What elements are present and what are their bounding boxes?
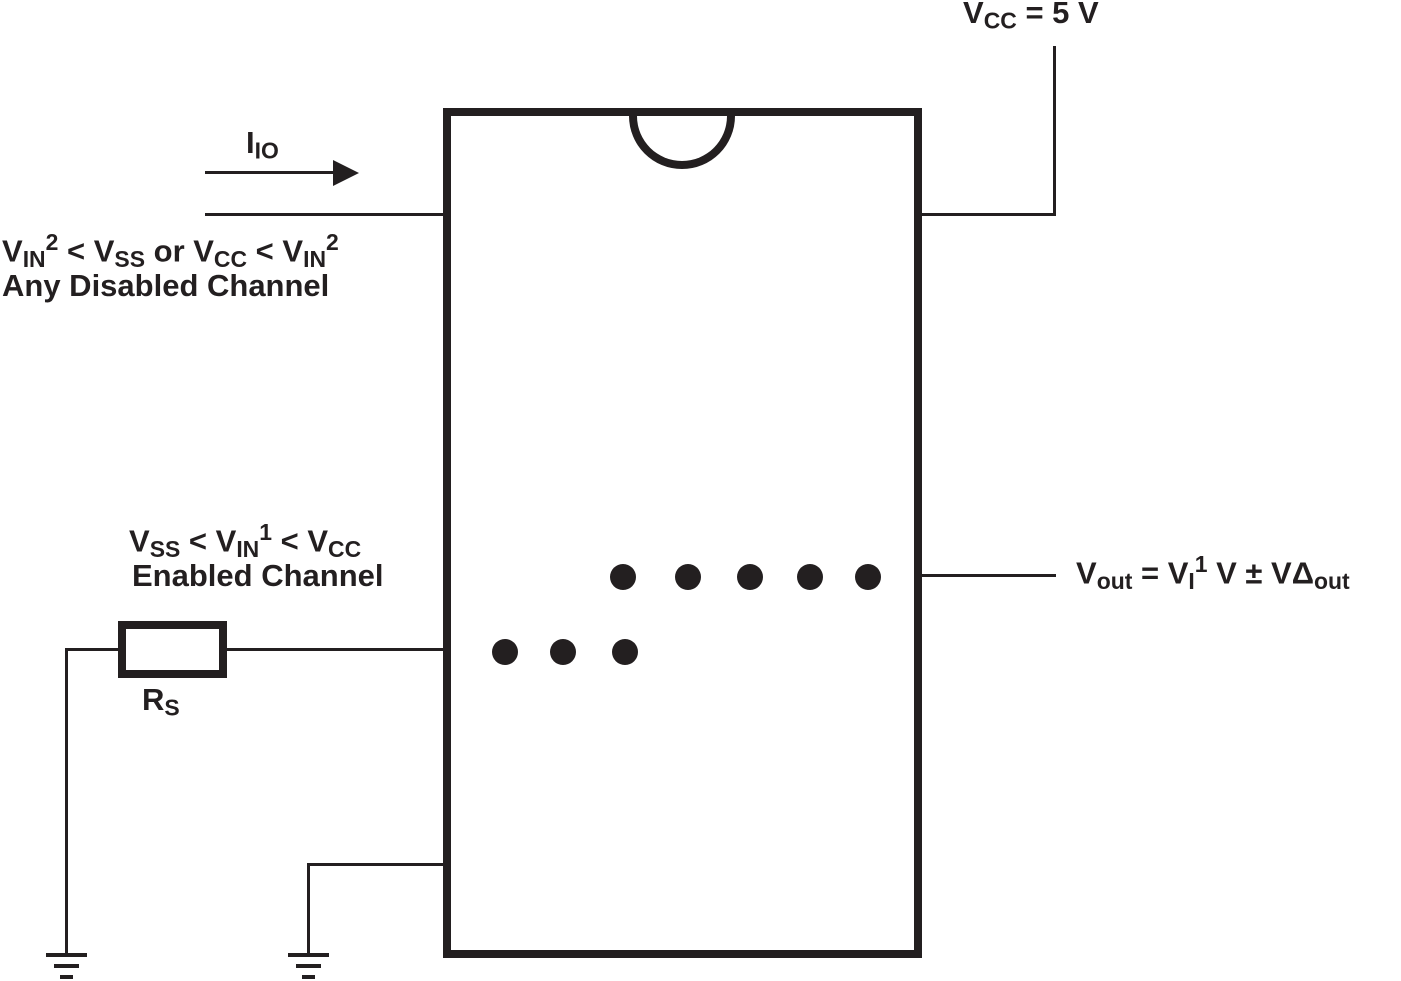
channel-dot (610, 564, 636, 590)
text-run: V (1076, 555, 1097, 590)
ground-bar (302, 975, 315, 979)
channel-dot (797, 564, 823, 590)
channel-dot (612, 639, 638, 665)
text-sub: IO (255, 138, 279, 164)
ground-bar (296, 964, 321, 968)
resistor-label: RS (142, 682, 180, 726)
wire-ground-down (307, 863, 310, 955)
wire-ic-to-ground (307, 863, 446, 866)
test-circuit-diagram: VCC = 5 V IIO VIN2 < VSS or VCC < VIN2 A… (0, 0, 1401, 981)
ground-bar (54, 964, 79, 968)
text-run: R (142, 682, 164, 717)
text-run: < V (272, 523, 328, 558)
text-sup: 1 (1195, 551, 1208, 577)
iio-label: IIO (246, 125, 279, 169)
text-sup: 1 (259, 519, 272, 545)
text-run: V (129, 523, 150, 558)
channel-dot (855, 564, 881, 590)
text-sub: CC (984, 8, 1017, 34)
wire-resistor-to-ic (224, 648, 446, 651)
channel-dot (675, 564, 701, 590)
text-sup: 2 (46, 229, 59, 255)
text-sup: 2 (326, 229, 339, 255)
disabled-caption-label: Any Disabled Channel (2, 268, 329, 304)
channel-dot (492, 639, 518, 665)
ground-bar (46, 953, 87, 957)
ground-bar (60, 975, 73, 979)
text-run: < V (247, 233, 303, 268)
text-run: < V (58, 233, 114, 268)
vcc-label: VCC = 5 V (963, 0, 1099, 39)
wire-source-down (65, 648, 68, 956)
text-run: V (963, 0, 984, 30)
text-run: V ± VΔ (1208, 555, 1315, 590)
text-run: I (246, 125, 255, 160)
ground-bar (288, 953, 329, 957)
resistor (118, 621, 227, 678)
text-run: or V (145, 233, 214, 268)
vout-label: Vout = VI1 V ± VΔout (1076, 546, 1350, 599)
wire-disabled-input (205, 213, 446, 216)
text-run: V (2, 233, 23, 268)
wire-vcc-feed (918, 213, 1056, 216)
ic-body (443, 108, 922, 958)
text-run: = 5 V (1017, 0, 1099, 30)
channel-dot (737, 564, 763, 590)
text-run: = V (1132, 555, 1188, 590)
wire-vcc-drop (1053, 46, 1056, 216)
text-sub: out (1314, 568, 1350, 594)
channel-dot (550, 639, 576, 665)
enabled-caption-label: Enabled Channel (132, 558, 383, 594)
current-arrow-head-icon (333, 160, 359, 186)
wire-source-to-resistor (65, 648, 121, 651)
text-sub: S (164, 695, 179, 721)
text-run: < V (180, 523, 236, 558)
current-arrow-line (205, 171, 335, 174)
wire-output (918, 574, 1056, 577)
text-sub: out (1097, 568, 1133, 594)
